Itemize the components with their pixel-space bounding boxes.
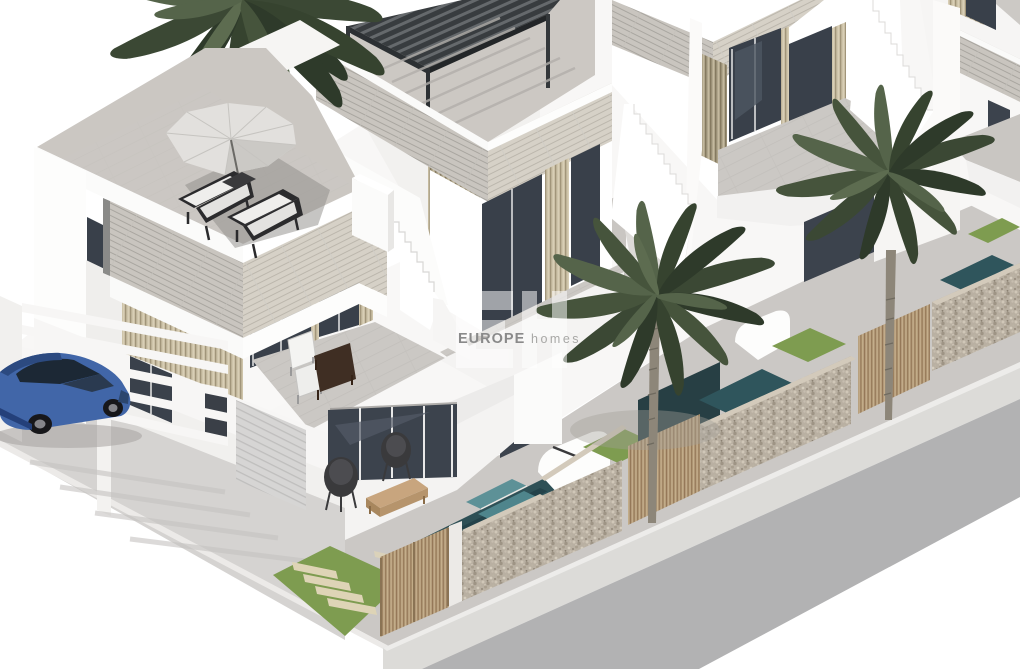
- svg-text:homes: homes: [531, 332, 581, 346]
- svg-text:EUROPE: EUROPE: [458, 331, 525, 347]
